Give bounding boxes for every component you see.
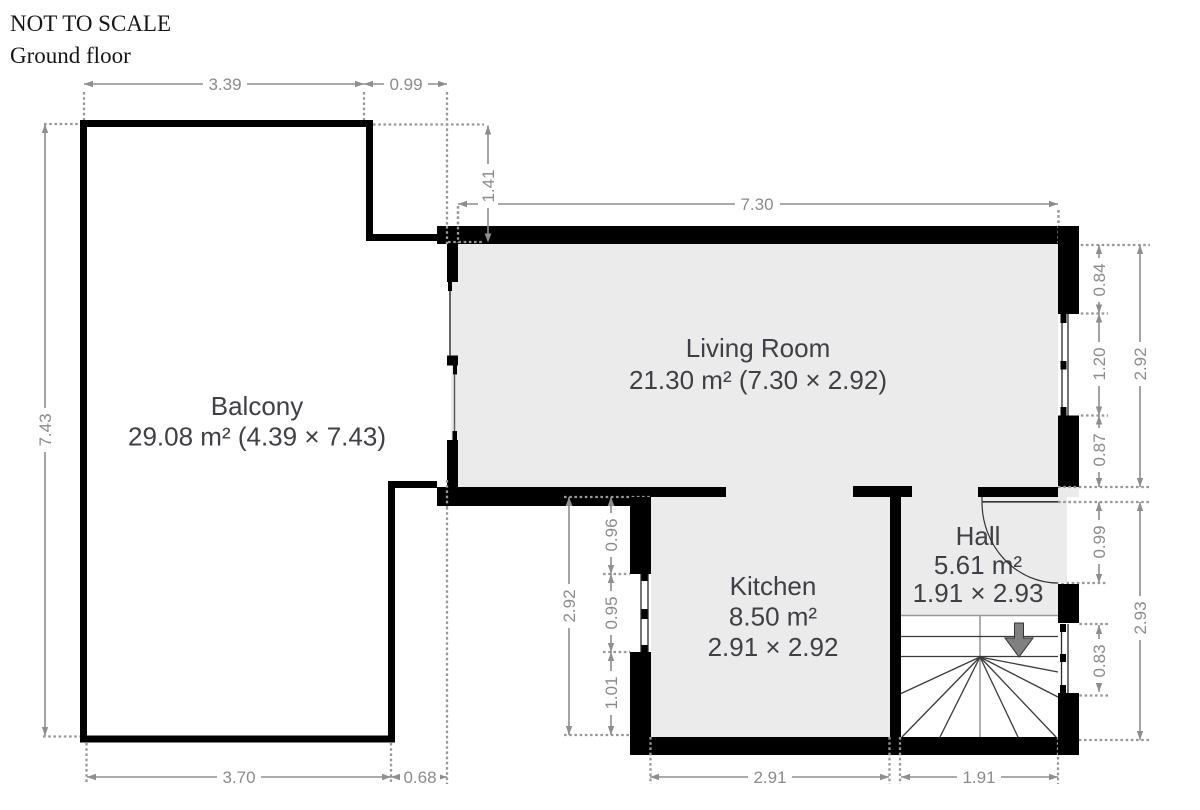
svg-text:7.30: 7.30 xyxy=(740,195,773,214)
svg-text:Hall: Hall xyxy=(956,521,1001,551)
svg-text:0.95: 0.95 xyxy=(602,596,621,629)
svg-text:0.96: 0.96 xyxy=(602,518,621,551)
svg-text:Balcony: Balcony xyxy=(211,391,304,421)
svg-text:Ground floor: Ground floor xyxy=(10,43,131,68)
svg-text:1.91: 1.91 xyxy=(962,768,995,787)
svg-text:Kitchen: Kitchen xyxy=(730,571,817,601)
svg-text:0.99: 0.99 xyxy=(1090,525,1109,558)
svg-text:2.92: 2.92 xyxy=(560,589,579,622)
svg-text:0.83: 0.83 xyxy=(1090,644,1109,677)
svg-text:3.70: 3.70 xyxy=(222,768,255,787)
svg-text:0.87: 0.87 xyxy=(1090,433,1109,466)
svg-text:7.43: 7.43 xyxy=(36,413,55,446)
svg-text:Living Room: Living Room xyxy=(686,333,831,363)
svg-text:21.30 m² (7.30 × 2.92): 21.30 m² (7.30 × 2.92) xyxy=(629,365,887,395)
svg-text:1.01: 1.01 xyxy=(602,676,621,709)
svg-text:0.68: 0.68 xyxy=(403,768,436,787)
svg-text:2.92: 2.92 xyxy=(1131,347,1150,380)
svg-text:8.50 m²: 8.50 m² xyxy=(729,602,817,632)
svg-text:3.39: 3.39 xyxy=(208,75,241,94)
svg-text:1.20: 1.20 xyxy=(1090,347,1109,380)
svg-text:0.84: 0.84 xyxy=(1090,263,1109,296)
svg-text:2.91: 2.91 xyxy=(753,768,786,787)
svg-text:2.91 × 2.92: 2.91 × 2.92 xyxy=(708,632,839,662)
svg-text:2.93: 2.93 xyxy=(1131,601,1150,634)
svg-text:1.91 × 2.93: 1.91 × 2.93 xyxy=(913,578,1044,608)
svg-text:NOT TO SCALE: NOT TO SCALE xyxy=(10,11,171,36)
svg-text:29.08 m² (4.39 × 7.43): 29.08 m² (4.39 × 7.43) xyxy=(128,422,386,452)
svg-text:5.61 m²: 5.61 m² xyxy=(934,550,1022,580)
svg-text:1.41: 1.41 xyxy=(479,169,498,202)
svg-text:0.99: 0.99 xyxy=(389,75,422,94)
